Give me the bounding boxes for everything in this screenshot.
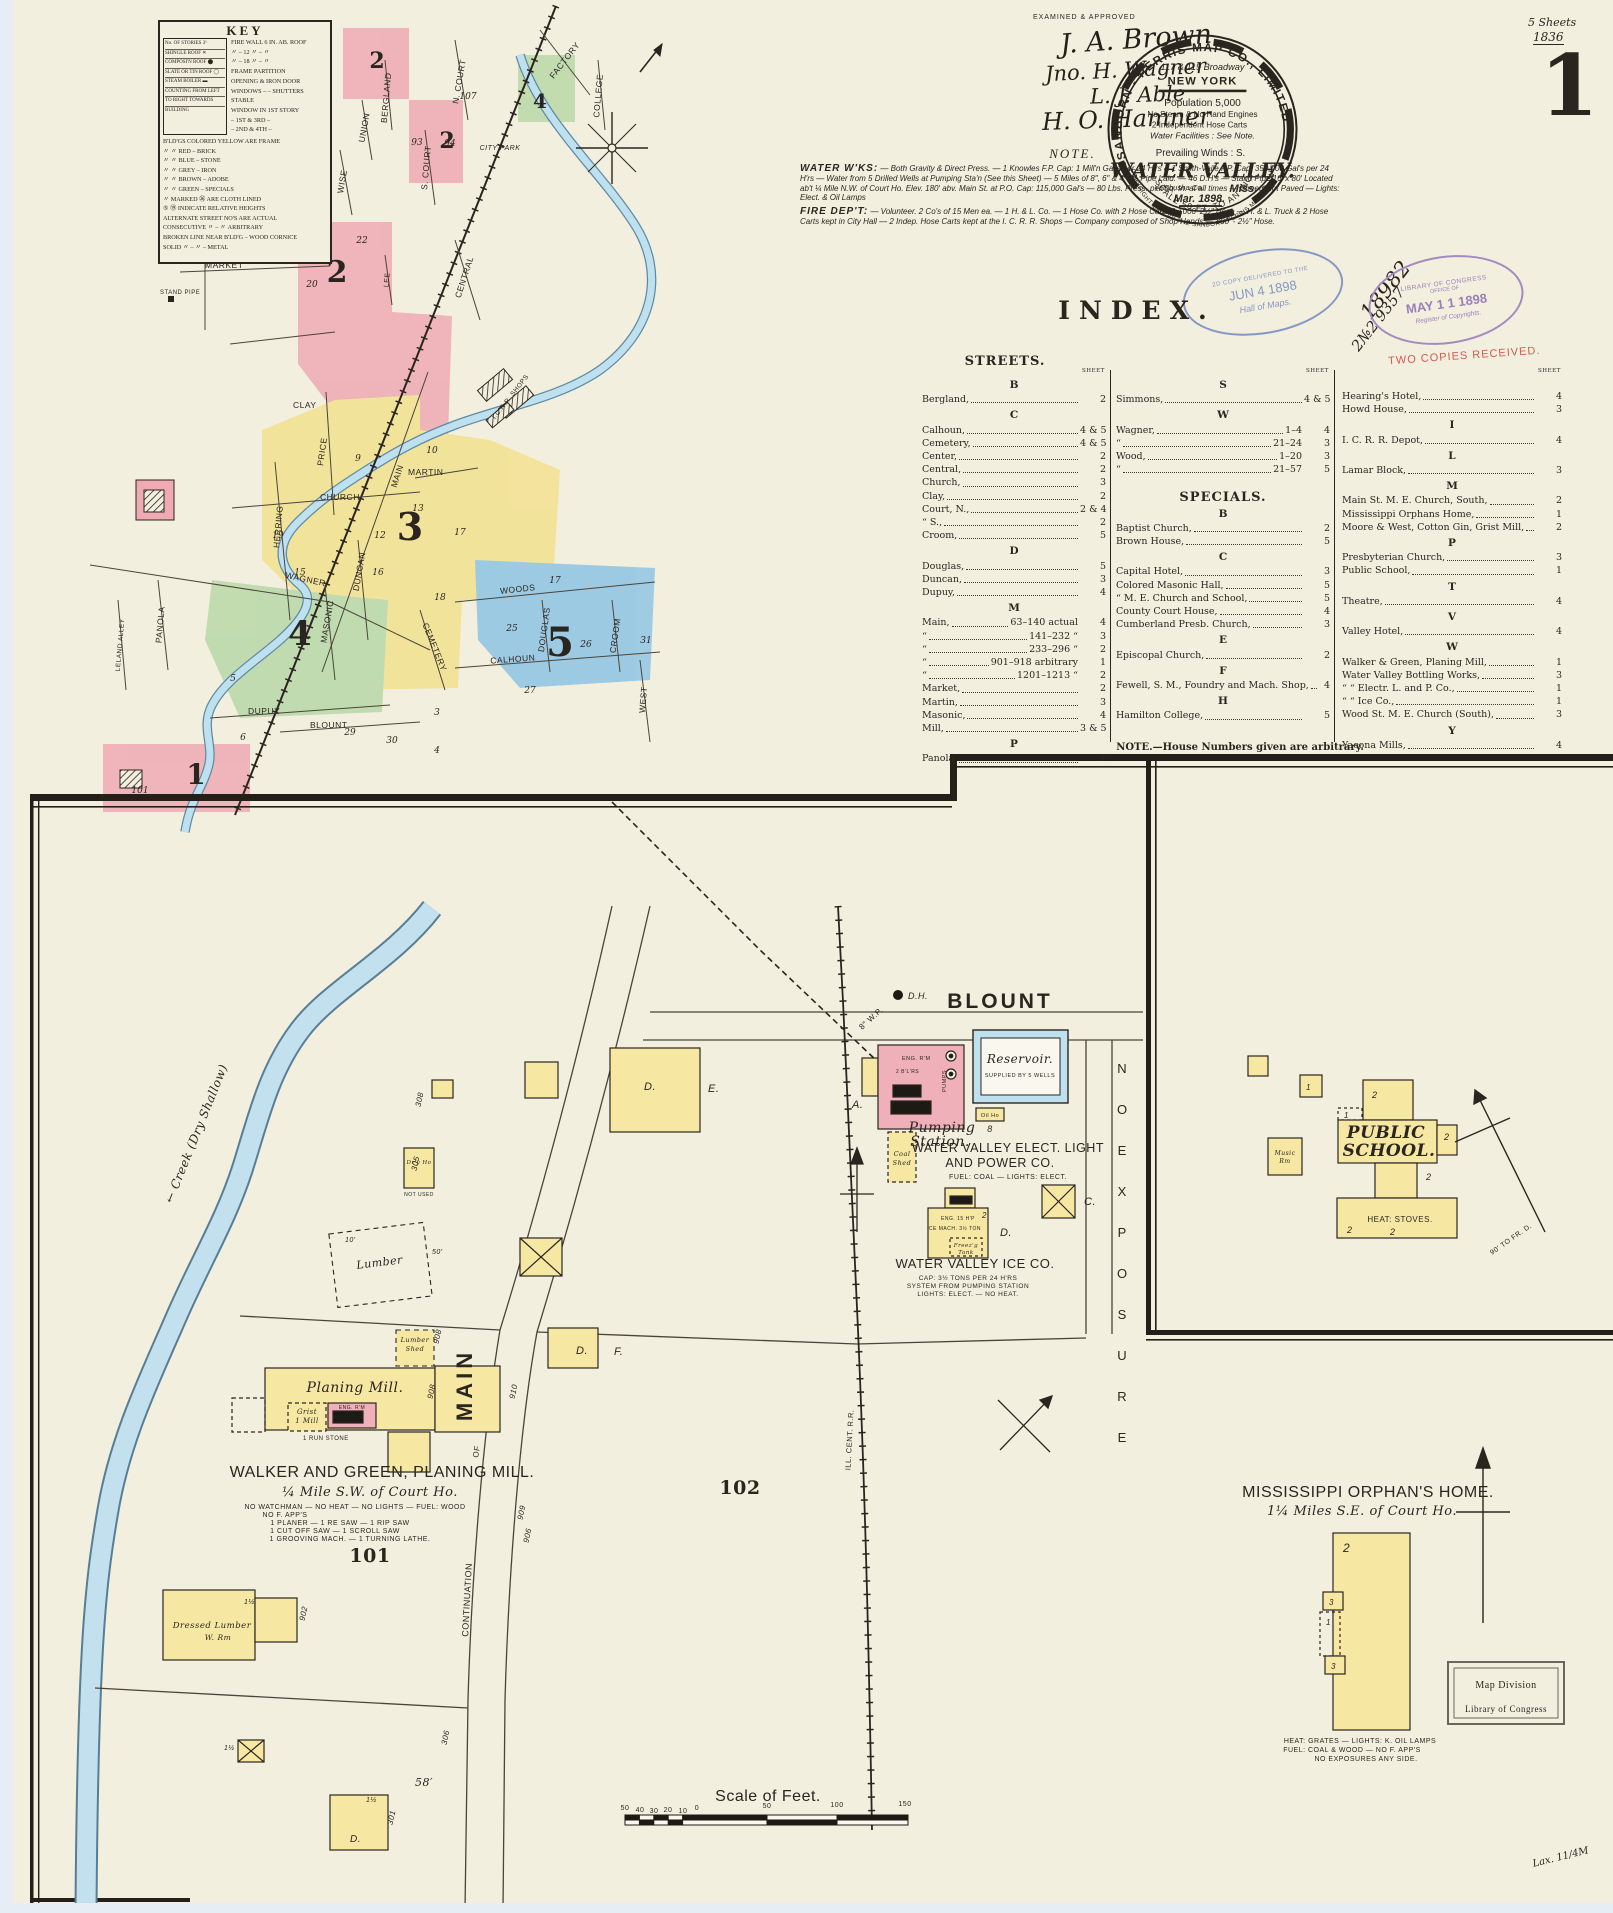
ice-mach: ICE MACH. 3½ TON	[927, 1225, 981, 1232]
index-entry: Lamar Block,3	[1342, 464, 1562, 477]
boilers-label: 2 B'L'RS	[896, 1069, 919, 1075]
d-label-3: D.	[576, 1345, 588, 1357]
sheet-column-label-2: SHEET	[1306, 368, 1329, 374]
sanborn-map-sheet: MARKET CLAY PRICE CHURCH MAIN MARTIN HER…	[0, 0, 1613, 1913]
index-letter: B	[922, 379, 1106, 392]
index-divider-1	[1110, 370, 1111, 742]
logo-date: Mar. 1898.	[1174, 193, 1225, 205]
index-entry: Masonic,4	[922, 709, 1106, 722]
orphan-n2f: 2	[1342, 1541, 1350, 1555]
svg-text:20: 20	[305, 280, 318, 290]
scale-t7: 100	[830, 1802, 843, 1809]
dressed-label1: Dressed Lumber	[172, 1621, 252, 1631]
svg-text:9: 9	[355, 454, 361, 464]
index-entry: “ M. E. Church and School,5	[1116, 592, 1330, 605]
dryho-label2: NOT USED	[404, 1192, 434, 1198]
svg-text:94: 94	[444, 139, 456, 149]
school-n2b: 2	[1443, 1132, 1450, 1142]
index-letter: Y	[1342, 725, 1562, 738]
num-908a: 908	[432, 1328, 444, 1344]
index-entry: Wood,1–203	[1116, 450, 1330, 463]
walker-line3: NO WATCHMAN — NO HEAT — NO LIGHTS — FUEL…	[244, 1504, 465, 1511]
svg-text:5: 5	[546, 619, 574, 666]
d-label-1: D.	[1000, 1227, 1012, 1239]
svg-text:22: 22	[355, 236, 368, 246]
num-906: 906	[522, 1527, 534, 1543]
sheets-count: 5 Sheets	[1528, 16, 1576, 29]
index-entry: “901–918 arbitrary1	[922, 656, 1106, 669]
index-entry: Clay,2	[922, 490, 1106, 503]
index-entry: “ “ Ice Co.,1	[1342, 695, 1562, 708]
index-entry: Center,2	[922, 450, 1106, 463]
index-entry: “ “ Electr. L. and P. Co.,1	[1342, 682, 1562, 695]
index-entry: Hamilton College,5	[1116, 709, 1330, 722]
svg-text:107: 107	[459, 92, 476, 102]
elp-label1: WATER VALLEY ELECT. LIGHT	[912, 1141, 1104, 1155]
m58: 58′	[415, 1776, 433, 1789]
school-north-arrow-icon	[1455, 1090, 1545, 1232]
runstone-label: 1 RUN STONE	[303, 1436, 349, 1442]
svg-text:26: 26	[579, 640, 592, 650]
index-letter: I	[1342, 419, 1562, 432]
pumps-label: PUMPS	[942, 1070, 948, 1092]
num-902: 902	[298, 1605, 310, 1621]
svg-text:4: 4	[533, 89, 547, 113]
map-key: KEY No. OF STORIES 3¹SHINGLE ROOF ✕ COMP…	[158, 20, 332, 264]
city-hall-building	[120, 296, 174, 788]
map-division-stamp	[1448, 1662, 1564, 1724]
index-specials-heading: SPECIALS.	[1116, 491, 1330, 504]
street-label: WEST	[637, 686, 649, 713]
index-letter: F	[1116, 665, 1330, 678]
street-label: BLOUNT	[310, 720, 347, 730]
wp-label: 8″ W.P.	[857, 1005, 884, 1031]
engrm2-label: ENG. R'M	[339, 1405, 365, 1411]
index-entry: Duncan,3	[922, 573, 1106, 586]
street-label: STAND PIPE	[160, 290, 200, 296]
music-label2: Rm	[1278, 1158, 1290, 1165]
key-legend-column: Fire Wall 6 in. ab. Roof〃 – 12 〃 – 〃〃 – …	[227, 38, 327, 135]
mapdiv-label2: Library of Congress	[1465, 1704, 1547, 1714]
scale-t0: 50	[621, 1805, 630, 1812]
block-102: 102	[719, 1477, 760, 1499]
svg-text:29: 29	[343, 728, 356, 738]
index-entry: Colored Masonic Hall,5	[1116, 579, 1330, 592]
index-entry: Moore & West, Cotton Gin, Grist Mill,2	[1342, 521, 1562, 534]
creek-label: ← Creek (Dry Shallow)	[162, 1062, 230, 1205]
index-entry: “233–296 “2	[922, 643, 1106, 656]
reservoir-sub: SUPPLIED BY 5 WELLS	[985, 1073, 1055, 1079]
m50: 50′	[432, 1249, 443, 1256]
index-letter: S	[1116, 379, 1330, 392]
index-column-1: BBergland,2CCalhoun,4 & 5Cemetery,4 & 5C…	[922, 376, 1106, 766]
engrm-label: ENG. R'M	[902, 1056, 931, 1062]
logo-title: WATER VALLEY.	[1110, 159, 1295, 183]
index-column-2: SSimmons,4 & 5WWagner,1–44“21–243Wood,1–…	[1116, 376, 1330, 723]
key-color-legend: B'ld'gs colored YELLOW are FRAME〃 〃 RED …	[163, 137, 327, 252]
street-label: CHURCH	[320, 492, 360, 502]
of-label: OF	[471, 1445, 482, 1458]
svg-text:16: 16	[372, 568, 384, 578]
main-street-label: MAIN	[452, 1349, 477, 1421]
index-letter: M	[1342, 480, 1562, 493]
index-entry: Brown House,5	[1116, 535, 1330, 548]
orphan-sub: 1¼ Miles S.E. of Court Ho.	[1267, 1504, 1457, 1519]
index-entry: Hearing's Hotel,4	[1342, 390, 1562, 403]
index-entry: Theatre,4	[1342, 595, 1562, 608]
music-label1: Music	[1274, 1150, 1296, 1157]
index-entry: Martin,3	[922, 696, 1106, 709]
index-letter: L	[1342, 450, 1562, 463]
num-909: 909	[516, 1504, 528, 1520]
index-entry: Dupuy,4	[922, 586, 1106, 599]
school-heat: HEAT: STOVES.	[1367, 1215, 1432, 1224]
school-n2d: 2	[1346, 1225, 1353, 1235]
m10: 10′	[345, 1237, 356, 1244]
index-entry: Main,63–140 actual4	[922, 616, 1106, 629]
planing-label: Planing Mill.	[306, 1380, 404, 1396]
orphan-n3b: 3	[1331, 1662, 1336, 1671]
logo-address: 117 & 119 Broadway	[1161, 62, 1246, 72]
scale-t3: 20	[664, 1807, 673, 1814]
reservoir-label: Reservoir.	[986, 1052, 1053, 1066]
dressed-label2: W. Rm	[205, 1633, 231, 1642]
orphan-note1: HEAT: GRATES — LIGHTS: K. OIL LAMPS	[1284, 1738, 1436, 1745]
svg-text:93: 93	[411, 138, 423, 148]
index-entry: County Court House,4	[1116, 605, 1330, 618]
index-letter: P	[1342, 537, 1562, 550]
index-letter: C	[922, 409, 1106, 422]
street-label: CLAY	[293, 400, 317, 410]
index-entry: Cemetery,4 & 5	[922, 437, 1106, 450]
num-308: 308	[414, 1091, 426, 1107]
svg-text:27: 27	[523, 686, 536, 696]
svg-text:2: 2	[369, 48, 384, 74]
misc-buildings	[404, 1048, 1268, 1368]
index-entry: Cumberland Presb. Church,3	[1116, 618, 1330, 631]
logo-winds: Prevailing Winds : S.	[1156, 148, 1245, 159]
svg-text:19: 19	[272, 531, 284, 541]
index-entry: “21–243	[1116, 437, 1330, 450]
orphan-title: MISSISSIPPI ORPHAN'S HOME.	[1242, 1484, 1494, 1501]
elp-label2: AND POWER CO.	[945, 1156, 1054, 1170]
index-entry: Calhoun,4 & 5	[922, 424, 1106, 437]
orphan-n3a: 3	[1329, 1598, 1334, 1607]
scan-edge-bottom	[0, 1903, 1613, 1913]
logo-water: Water Facilities : See Note.	[1150, 131, 1255, 141]
lumber-label: Lumber	[355, 1253, 404, 1272]
water-pipe-line	[612, 802, 878, 1062]
sheet-borders	[30, 754, 1613, 1904]
orphan-note3: NO EXPOSURES ANY SIDE.	[1314, 1756, 1417, 1763]
index-entry: Walker & Green, Planing Mill,1	[1342, 656, 1562, 669]
street-label: LEE	[383, 272, 391, 287]
hall-of-maps-stamp: 2D COPY DELIVERED TO THE JUN 4 1898 Hall…	[1176, 237, 1350, 348]
d-label-2: D.	[644, 1081, 656, 1093]
scale-bar	[625, 1815, 908, 1825]
svg-text:3: 3	[434, 708, 440, 718]
no-exposure-label: N O E X P O S U R E	[1113, 1048, 1131, 1458]
school-n2e: 2	[1389, 1227, 1396, 1237]
index-letter: D	[922, 545, 1106, 558]
continuation-label: CONTINUATION	[460, 1563, 474, 1637]
school-note: 90′ TO FR. D.	[1489, 1223, 1533, 1257]
ice-num2: 2	[981, 1211, 987, 1220]
note-fire-heading: FIRE DEP'T:	[800, 206, 868, 217]
index-entry: Presbyterian Church,3	[1342, 551, 1562, 564]
index-entry: Fewell, S. M., Foundry and Mach. Shop,4	[1116, 679, 1330, 692]
school-title1: PUBLIC	[1346, 1123, 1425, 1143]
index-entry: I. C. R. R. Depot,4	[1342, 434, 1562, 447]
svg-text:5: 5	[230, 674, 236, 684]
index-title: INDEX.	[1037, 296, 1237, 325]
index-divider-2	[1334, 370, 1335, 742]
oilho-label: Oil Ho	[981, 1113, 999, 1119]
scale-t6: 50	[763, 1803, 772, 1810]
e-label: E.	[708, 1083, 719, 1095]
index-streets-heading: STREETS.	[940, 354, 1070, 369]
num-306: 306	[440, 1729, 452, 1745]
index-entry: Wagner,1–44	[1116, 424, 1330, 437]
ice-sys: SYSTEM FROM PUMPING STATION	[907, 1283, 1029, 1290]
logo-hose-carts: 2 Independent Hose Carts	[1152, 120, 1247, 129]
mapdiv-label1: Map Division	[1475, 1680, 1536, 1691]
walker-line2: ¼ Mile S.W. of Court Ho.	[282, 1485, 458, 1500]
scale-t2: 30	[650, 1808, 659, 1815]
dh-label: D.H.	[908, 991, 928, 1001]
svg-text:10: 10	[426, 446, 438, 456]
scale-t1: 40	[636, 1807, 645, 1814]
ice-eng: ENG. 15 H'P	[941, 1216, 975, 1222]
walker-line6: 1 CUT OFF SAW — 1 SCROLL SAW	[270, 1528, 400, 1535]
scale-t5: 0	[695, 1805, 699, 1812]
street-label: LELAND ALLEY	[115, 618, 127, 672]
scan-edge-left	[0, 0, 13, 1913]
index-letter: P	[922, 738, 1106, 751]
index-entry: Bergland,2	[922, 393, 1106, 406]
house-n1h: 1½	[366, 1796, 377, 1804]
reservoir	[973, 1030, 1068, 1103]
index-entry: “141–232 “3	[922, 630, 1106, 643]
overview-city-map: MARKET CLAY PRICE CHURCH MAIN MARTIN HER…	[0, 0, 700, 860]
num-301: 301	[386, 1809, 398, 1825]
dead-hydrant-dot	[893, 990, 903, 1000]
index-footnote: NOTE.—House Numbers given are arbitrary.	[1100, 742, 1380, 753]
grist-label1: Grist	[297, 1408, 317, 1416]
detail-map: BLOUNT D.H. 8″ W.P. A. ENG. R'M 2 B'L'RS…	[0, 740, 1613, 1913]
coalshed-label2: Shed	[893, 1159, 912, 1167]
index-entry: Croom,5	[922, 529, 1106, 542]
walker-line7: 1 GROOVING MACH. — 1 TURNING LATHE.	[270, 1536, 431, 1543]
index-entry: Public School,1	[1342, 564, 1562, 577]
svg-text:15: 15	[294, 568, 306, 578]
index-letter: C	[1116, 551, 1330, 564]
coalshed-label1: Coal	[894, 1150, 911, 1158]
index-entry: Church,3	[922, 476, 1106, 489]
index-entry: “21–575	[1116, 463, 1330, 476]
index-letter: W	[1342, 641, 1562, 654]
rr-label: ILL. CENT. R.R.	[843, 1409, 855, 1470]
ice-lights: LIGHTS: ELECT. — NO HEAT.	[917, 1291, 1018, 1298]
elp-label3: FUEL: COAL — LIGHTS: ELECT.	[949, 1174, 1067, 1181]
ice-title: WATER VALLEY ICE CO.	[895, 1256, 1054, 1271]
index-entry: Panola,4	[922, 752, 1106, 765]
index-entry: Baptist Church,2	[1116, 522, 1330, 535]
index-entry: Howd House,3	[1342, 403, 1562, 416]
school-n1a: 1	[1344, 1111, 1349, 1120]
logo-population: Population 5,000	[1164, 98, 1241, 109]
a-label: A.	[851, 1099, 863, 1111]
index-entry: Wood St. M. E. Church (South),3	[1342, 708, 1562, 721]
school-n1b: 1	[1306, 1083, 1311, 1092]
index-entry: Episcopal Church,2	[1116, 649, 1330, 662]
school-title2: SCHOOL.	[1343, 1141, 1436, 1161]
dressed-n1h: 1½	[244, 1598, 255, 1606]
svg-text:13: 13	[412, 504, 424, 514]
orphan-north-arrow-icon	[1456, 1448, 1510, 1623]
index-letter: M	[922, 602, 1106, 615]
index-letter: T	[1342, 581, 1562, 594]
c-label: C.	[1084, 1196, 1096, 1208]
svg-text:31: 31	[640, 636, 651, 646]
street-label: MARTIN	[408, 467, 443, 477]
street-label: UNION	[357, 112, 372, 143]
block-101: 101	[349, 1545, 390, 1567]
index-letter: H	[1116, 695, 1330, 708]
logo-engines: No Steam & No Hand Engines	[1147, 110, 1257, 119]
index-entry: “ S.,2	[922, 516, 1106, 529]
bl-n1h: 1½	[224, 1744, 235, 1752]
index-entry: Water Valley Bottling Works,3	[1342, 669, 1562, 682]
scale-t4: 10	[679, 1808, 688, 1815]
two-copies-stamp: TWO COPIES RECEIVED.	[1388, 345, 1541, 368]
key-title: KEY	[163, 24, 327, 38]
ice-cap: CAP: 3½ TONS PER 24 H'RS	[919, 1274, 1018, 1282]
index-entry: Main St. M. E. Church, South,2	[1342, 494, 1562, 507]
index-letter: V	[1342, 611, 1562, 624]
logo-county: Yalobusha Co.	[1154, 183, 1204, 192]
street-label: DUPUY	[248, 706, 280, 716]
logo-city: NEW YORK	[1168, 76, 1238, 88]
index-entry: Central,2	[922, 463, 1106, 476]
svg-text:25: 25	[505, 624, 518, 634]
lumbershed-label2: Shed	[406, 1345, 425, 1353]
index-entry: Douglas,5	[922, 560, 1106, 573]
index-entry: Mill,3 & 5	[922, 722, 1106, 735]
copyright-office-stamp: LIBRARY OF CONGRESS OFFICE OF MAY 1 1 18…	[1363, 246, 1530, 355]
svg-text:4: 4	[288, 614, 312, 654]
railroad-detail	[838, 906, 872, 1830]
index-letter: E	[1116, 634, 1330, 647]
index-entry: Mississippi Orphans Home,1	[1342, 508, 1562, 521]
logo-state: Miss.	[1229, 183, 1257, 195]
orphan-n1: 1	[1326, 1618, 1331, 1627]
index-letter: W	[1116, 409, 1330, 422]
svg-text:18: 18	[434, 593, 446, 603]
sheet-column-label-3: SHEET	[1538, 368, 1561, 374]
svg-text:17: 17	[549, 576, 561, 586]
walker-line4: NO F. APP'S	[263, 1512, 308, 1519]
index-letter: B	[1116, 508, 1330, 521]
key-symbol-column: No. OF STORIES 3¹SHINGLE ROOF ✕ COMPOSI'…	[163, 38, 227, 135]
house-d-label: D.	[350, 1834, 361, 1845]
school-n2a: 2	[1371, 1090, 1378, 1100]
street-blount: BLOUNT	[947, 990, 1053, 1013]
orphan-home-buildings	[1320, 1533, 1410, 1730]
oilho-num: 8	[987, 1124, 993, 1134]
sheet-number: 1	[1540, 36, 1598, 135]
scale-t8: 150	[898, 1801, 911, 1808]
lumbershed-label1: Lumber	[400, 1336, 430, 1344]
f-label: F.	[614, 1346, 623, 1358]
index-entry: Court, N.,2 & 4	[922, 503, 1106, 516]
index-entry: Capital Hotel,3	[1116, 565, 1330, 578]
svg-text:12: 12	[374, 531, 386, 541]
freez-label1: Freez'g	[953, 1243, 978, 1249]
note-water-heading: WATER W'KS:	[800, 163, 878, 174]
num-910: 910	[508, 1383, 520, 1399]
walker-line5: 1 PLANER — 1 RE SAW — 1 RIP SAW	[270, 1520, 409, 1527]
index-entry: Valley Hotel,4	[1342, 625, 1562, 638]
street-label: CITY PARK	[480, 145, 521, 152]
sheet-column-label-1: SHEET	[1082, 368, 1105, 374]
orphan-note2: FUEL: COAL & WOOD — NO F. APP'S	[1283, 1747, 1421, 1754]
walker-line1: WALKER AND GREEN, PLANING MILL.	[230, 1464, 535, 1481]
index-column-3: Hearing's Hotel,4Howd House,3II. C. R. R…	[1342, 376, 1562, 752]
grist-label2: 1 Mill	[295, 1417, 319, 1425]
sanborn-logo: SANBORN - PERRIS MAP CO., LIMITED COPYRI…	[1085, 12, 1320, 247]
index-entry: Simmons,4 & 5	[1116, 393, 1330, 406]
street-label: CENTRAL	[453, 255, 476, 299]
school-n2c: 2	[1425, 1172, 1432, 1182]
index-entry: Market,2	[922, 682, 1106, 695]
svg-text:17: 17	[454, 528, 466, 538]
index-entry: “1201–1213 “2	[922, 669, 1106, 682]
